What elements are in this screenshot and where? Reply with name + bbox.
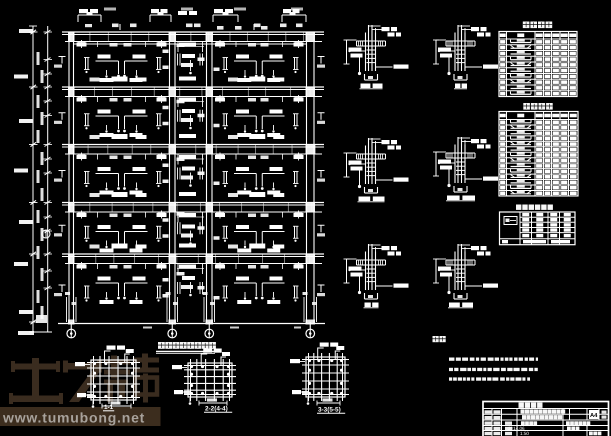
svg-text:www.tumubong.net: www.tumubong.net: [2, 410, 145, 426]
svg-text:1-1: 1-1: [104, 404, 114, 411]
svg-text:3-3(5-5): 3-3(5-5): [318, 407, 341, 414]
svg-text:A4: A4: [590, 413, 598, 419]
svg-text:1:50: 1:50: [520, 431, 529, 436]
svg-text:2-2(4-4): 2-2(4-4): [205, 406, 228, 413]
